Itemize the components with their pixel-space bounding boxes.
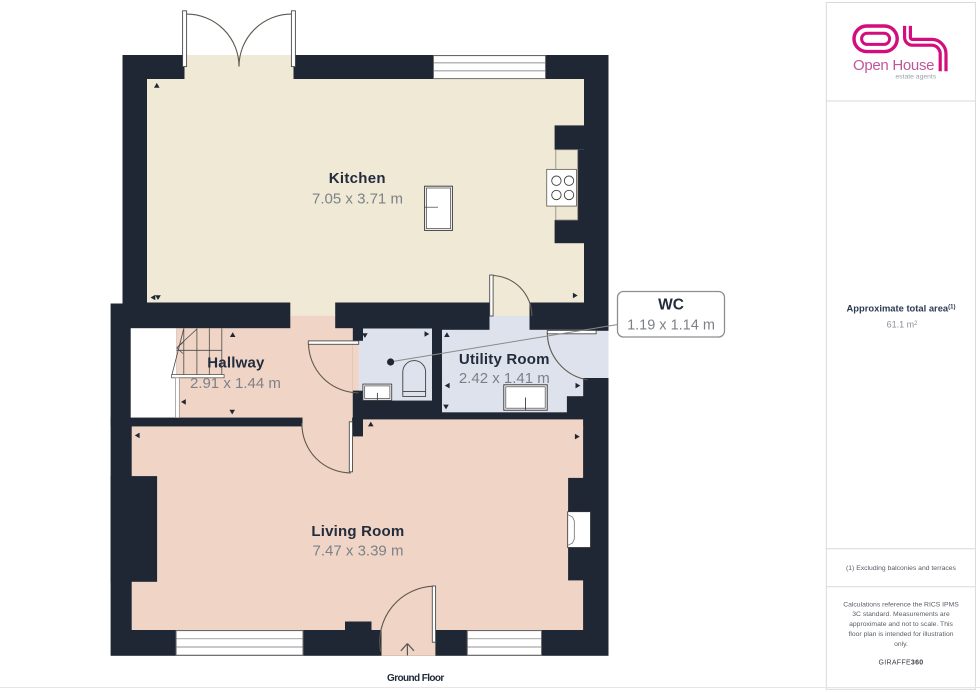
svg-text:estate agents: estate agents <box>895 73 936 80</box>
svg-text:only.: only. <box>894 641 908 648</box>
svg-text:WC: WC <box>658 297 684 314</box>
svg-text:Hallway: Hallway <box>207 354 265 371</box>
svg-text:(1) Excluding balconies and te: (1) Excluding balconies and terraces <box>846 565 957 572</box>
svg-text:Open House: Open House <box>853 57 934 74</box>
svg-text:Calculations reference the RIC: Calculations reference the RICS IPMS <box>843 601 959 608</box>
svg-text:Living Room: Living Room <box>311 523 404 540</box>
svg-text:Ground Floor: Ground Floor <box>387 673 444 684</box>
svg-text:7.05 x 3.71 m: 7.05 x 3.71 m <box>312 191 403 208</box>
svg-text:1.19 x 1.14 m: 1.19 x 1.14 m <box>627 317 715 333</box>
svg-text:Approximate total area(1): Approximate total area(1) <box>847 303 956 314</box>
svg-text:Kitchen: Kitchen <box>329 170 386 187</box>
svg-text:floor plan is intended for ill: floor plan is intended for illustration <box>848 631 953 638</box>
svg-text:approximate and not to scale.: approximate and not to scale. This <box>849 621 953 628</box>
svg-text:2.42 x 1.41 m: 2.42 x 1.41 m <box>459 370 550 387</box>
svg-text:3C standard. Measurements are: 3C standard. Measurements are <box>852 611 950 618</box>
svg-text:Utility Room: Utility Room <box>459 351 550 368</box>
svg-text:7.47 x 3.39 m: 7.47 x 3.39 m <box>313 542 404 559</box>
svg-text:2.91 x 1.44 m: 2.91 x 1.44 m <box>190 375 281 392</box>
svg-text:61.1 m2: 61.1 m2 <box>887 319 919 329</box>
svg-text:GIRAFFE360: GIRAFFE360 <box>878 660 923 667</box>
